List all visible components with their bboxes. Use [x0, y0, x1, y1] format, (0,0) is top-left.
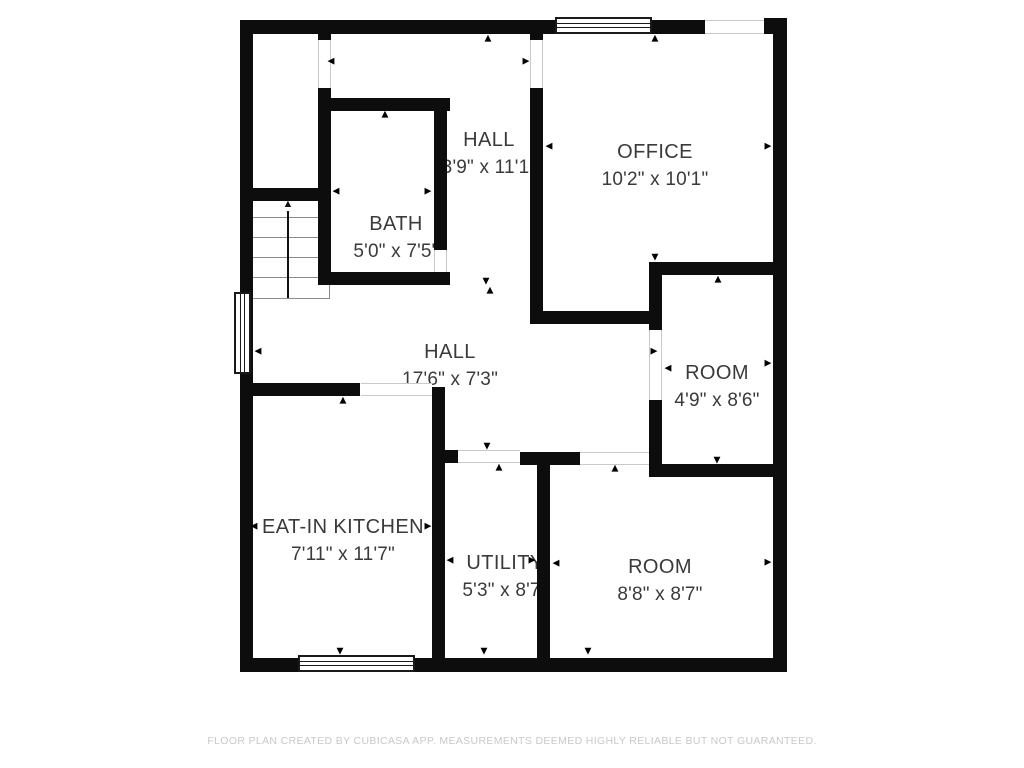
extent-arrow-right-icon: ▶ [425, 523, 432, 532]
floor-plan: ▲ HALL 3'9" x 11'1" OFFICE 10'2" x 10'1"… [0, 0, 1024, 768]
extent-arrow-up-icon: ▲ [485, 35, 492, 44]
extent-arrow-left-icon: ◀ [251, 523, 258, 532]
extent-arrow-right-icon: ▶ [765, 143, 772, 152]
door-opening-kitchen [361, 383, 432, 396]
wall-hall-nook-bottom [530, 311, 662, 324]
extent-arrow-right-icon: ▶ [529, 557, 536, 566]
door-opening-room-right [649, 330, 662, 400]
stair-direction-line [287, 211, 289, 298]
window-top [555, 17, 652, 34]
wall-utility-top [520, 452, 580, 465]
extent-arrow-left-icon: ◀ [255, 348, 262, 357]
room-name: ROOM [674, 360, 759, 387]
room-dimensions: 3'9" x 11'1" [442, 154, 537, 181]
room-dimensions: 10'2" x 10'1" [602, 166, 709, 193]
room-label-office: OFFICE 10'2" x 10'1" [602, 139, 709, 193]
wall-kitchen-top [248, 383, 360, 396]
wall-opening-top-right [705, 20, 764, 34]
extent-arrow-left-icon: ◀ [546, 143, 553, 152]
room-dimensions: 4'9" x 8'6" [674, 387, 759, 414]
extent-arrow-down-icon: ▼ [585, 648, 592, 657]
wall-bath-left [318, 88, 331, 285]
wall-utility-right [537, 465, 550, 658]
room-name: HALL [402, 339, 498, 366]
extent-arrow-down-icon: ▼ [652, 254, 659, 263]
extent-arrow-up-icon: ▲ [487, 287, 494, 296]
room-name: EAT-IN KITCHEN [262, 514, 424, 541]
room-name: HALL [442, 127, 537, 154]
extent-arrow-up-icon: ▲ [340, 397, 347, 406]
extent-arrow-up-icon: ▲ [612, 465, 619, 474]
wall-stub [445, 450, 458, 463]
door-opening [530, 40, 543, 88]
wall-stub [530, 32, 543, 40]
door-opening-bath [434, 250, 447, 272]
wall-kitchen-right [432, 387, 445, 658]
extent-arrow-right-icon: ▶ [765, 559, 772, 568]
extent-arrow-down-icon: ▼ [481, 648, 488, 657]
extent-arrow-up-icon: ▲ [382, 111, 389, 120]
room-dimensions: 5'0" x 7'5" [353, 238, 438, 265]
room-label-room-right: ROOM 4'9" x 8'6" [674, 360, 759, 414]
room-label-eat-in-kitchen: EAT-IN KITCHEN 7'11" x 11'7" [262, 514, 424, 568]
extent-arrow-right-icon: ▶ [425, 188, 432, 197]
extent-arrow-down-icon: ▼ [484, 443, 491, 452]
room-dimensions: 5'3" x 8'7" [462, 577, 547, 604]
door-opening-utility [458, 450, 520, 463]
extent-arrow-left-icon: ◀ [447, 557, 454, 566]
wall-office-left [530, 88, 543, 324]
extent-arrow-down-icon: ▼ [337, 648, 344, 657]
extent-arrow-down-icon: ▼ [483, 278, 490, 287]
extent-arrow-up-icon: ▲ [715, 276, 722, 285]
wall-bath-bottom [318, 272, 450, 285]
footer-disclaimer: FLOOR PLAN CREATED BY CUBICASA APP. MEAS… [0, 735, 1024, 747]
room-label-hall-upper: HALL 3'9" x 11'1" [442, 127, 537, 181]
wall-exterior-top [240, 20, 555, 34]
wall-rooms-divider [649, 464, 773, 477]
room-name: OFFICE [602, 139, 709, 166]
room-label-room-bottom: ROOM 8'8" x 8'7" [617, 554, 702, 608]
room-label-bath: BATH 5'0" x 7'5" [353, 211, 438, 265]
extent-arrow-left-icon: ◀ [333, 188, 340, 197]
extent-arrow-down-icon: ▼ [714, 457, 721, 466]
extent-arrow-right-icon: ▶ [651, 348, 658, 357]
wall-exterior-right [773, 20, 787, 672]
room-name: ROOM [617, 554, 702, 581]
wall-room-right-left-upper [649, 262, 662, 330]
wall-stub [318, 32, 331, 40]
window-kitchen [298, 655, 415, 672]
room-dimensions: 7'11" x 11'7" [262, 541, 424, 568]
room-name: BATH [353, 211, 438, 238]
wall-bath-right [434, 98, 447, 250]
window-left [234, 292, 251, 374]
extent-arrow-left-icon: ◀ [665, 365, 672, 374]
extent-arrow-up-icon: ▲ [496, 464, 503, 473]
extent-arrow-left-icon: ◀ [553, 560, 560, 569]
extent-arrow-up-icon: ▲ [652, 35, 659, 44]
wall-office-room-divider [662, 262, 773, 275]
extent-arrow-left-icon: ◀ [328, 58, 335, 67]
room-dimensions: 8'8" x 8'7" [617, 581, 702, 608]
wall-stair-top [253, 188, 325, 201]
extent-arrow-right-icon: ▶ [765, 360, 772, 369]
wall-exterior-top [650, 20, 705, 34]
extent-arrow-right-icon: ▶ [523, 58, 530, 67]
